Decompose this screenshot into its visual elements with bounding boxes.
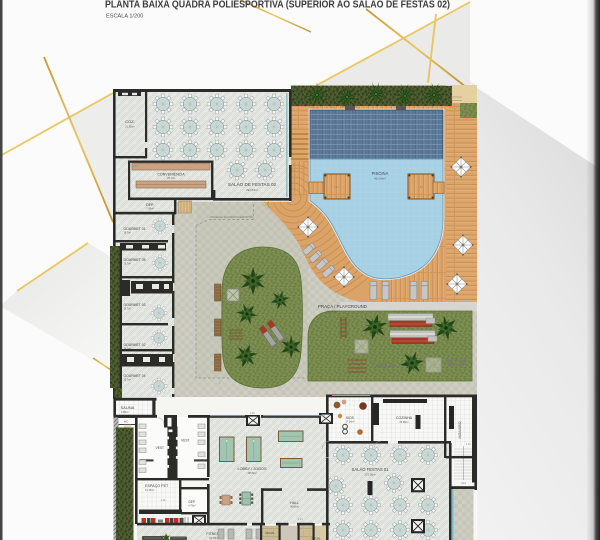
svg-text:461.09m²: 461.09m² [374,177,386,181]
svg-text:4.50: 4.50 [418,187,423,189]
svg-text:PLANTA BAIXA QUADRA POLIESPORT: PLANTA BAIXA QUADRA POLIESPORTIVA (SUPER… [105,0,450,11]
svg-text:4.14: 4.14 [466,444,471,446]
svg-text:SOCIAL: SOCIAL [265,531,275,535]
svg-text:7.05m²: 7.05m² [146,208,154,211]
svg-text:GOURMET 05: GOURMET 05 [124,258,146,262]
svg-text:46.80m²: 46.80m² [290,506,299,509]
svg-text:PRAÇA / PLAYGROUND: PRAÇA / PLAYGROUND [318,304,367,309]
svg-text:4.14: 4.14 [161,499,166,502]
svg-text:GOURMET 02: GOURMET 02 [124,343,146,347]
svg-text:21.30m²: 21.30m² [125,125,135,129]
svg-text:291.63m²: 291.63m² [246,188,258,192]
svg-text:PISCINA: PISCINA [372,171,389,176]
svg-text:1.24: 1.24 [133,166,138,168]
svg-text:105.5m²: 105.5m² [247,472,256,475]
svg-text:14.15m²: 14.15m² [145,489,154,492]
svg-text:LOBBY / JOGOS: LOBBY / JOGOS [237,467,267,471]
svg-text:4.80m²: 4.80m² [121,411,129,414]
svg-text:ESPAÇO PET: ESPAÇO PET [145,484,169,488]
svg-text:WC: WC [124,420,128,424]
svg-text:SALÃO FESTAS 01: SALÃO FESTAS 01 [352,467,390,472]
svg-text:VEST.: VEST. [156,446,165,450]
svg-text:GOURMET 01: GOURMET 01 [124,227,146,231]
svg-text:SAUNA: SAUNA [121,405,135,410]
svg-text:HALL: HALL [290,501,299,505]
svg-text:KIDS: KIDS [346,416,355,420]
svg-text:19.7m²: 19.7m² [124,378,132,381]
svg-text:COZINHA: COZINHA [396,416,413,420]
svg-text:2.96: 2.96 [250,413,255,415]
svg-text:PROJEÇÃO QUADRA POLIESPORTIVA: PROJEÇÃO QUADRA POLIESPORTIVA [210,216,254,219]
svg-text:GOURMET 04: GOURMET 04 [124,374,146,378]
svg-text:19.7m²: 19.7m² [124,231,132,234]
svg-text:DEP.: DEP. [146,203,154,207]
svg-text:DEP.: DEP. [188,500,195,504]
svg-text:COZ.: COZ. [125,119,135,124]
svg-text:17.36m²: 17.36m² [346,421,355,424]
svg-text:19.7m²: 19.7m² [124,262,132,265]
svg-text:VEST.: VEST. [181,439,190,443]
svg-text:4.50: 4.50 [334,187,339,189]
svg-text:CONVENIÊNCIA: CONVENIÊNCIA [157,172,185,177]
svg-text:28.7m²: 28.7m² [167,177,175,180]
svg-text:4.79m²: 4.79m² [188,504,196,507]
svg-text:492.47m²: 492.47m² [326,310,338,314]
svg-text:96.78m²: 96.78m² [209,537,218,540]
svg-text:19.7m²: 19.7m² [124,307,132,310]
svg-text:GOURMET 03: GOURMET 03 [124,303,146,307]
svg-text:25.89m²: 25.89m² [399,421,408,424]
svg-text:4.14: 4.14 [298,519,303,521]
svg-text:MANUSEIO: MANUSEIO [458,421,462,439]
svg-text:173.36m²: 173.36m² [365,472,376,476]
svg-text:SALÃO DE FESTAS 02: SALÃO DE FESTAS 02 [228,181,277,187]
svg-text:ESCALA 1/200: ESCALA 1/200 [106,14,143,20]
svg-text:4.14: 4.14 [461,482,466,485]
